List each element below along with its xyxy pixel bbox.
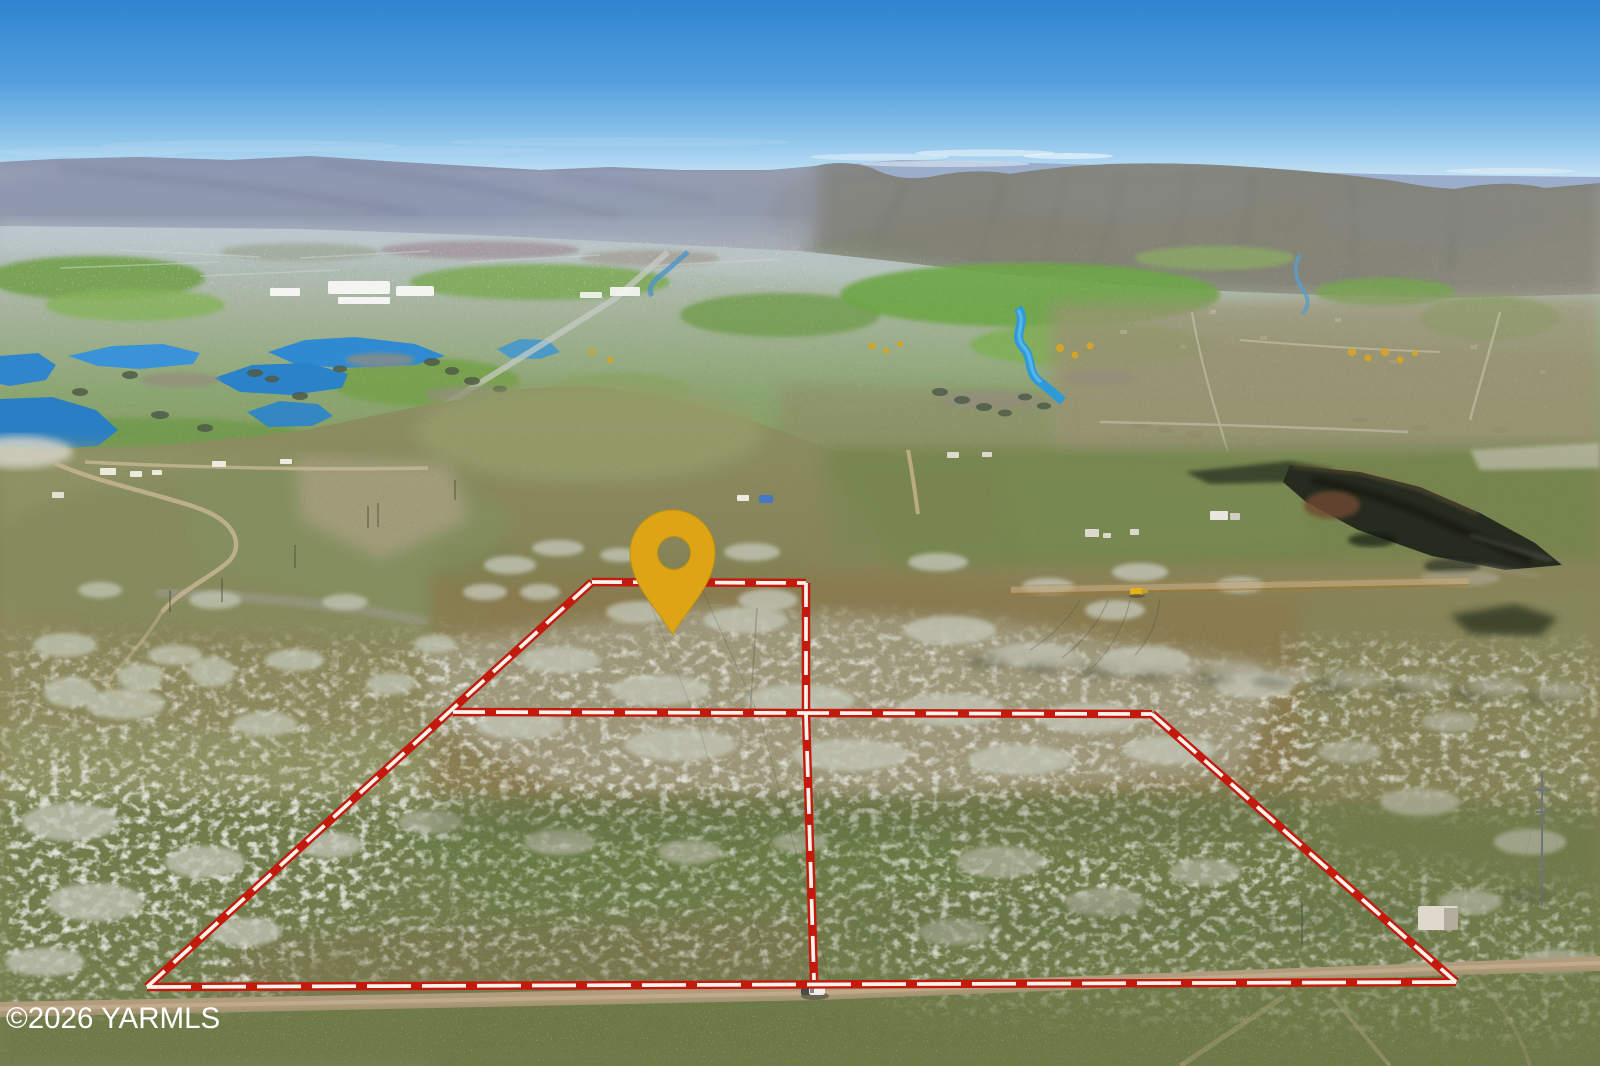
svg-text:©2026 YARMLS: ©2026 YARMLS (6, 1002, 220, 1035)
